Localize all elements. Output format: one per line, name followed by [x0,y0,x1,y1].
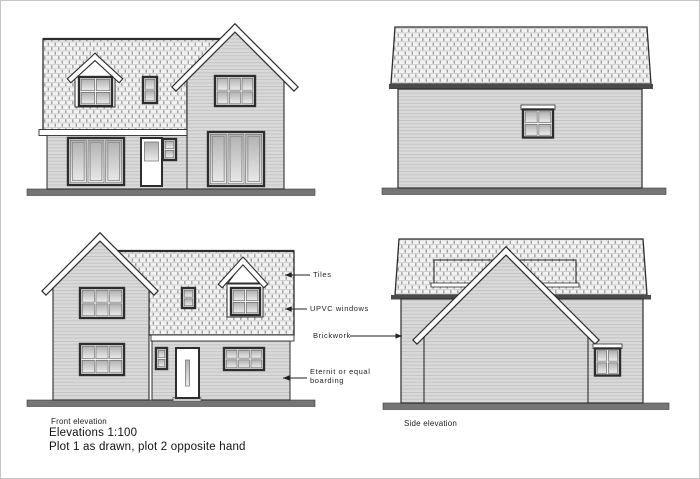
front-elevation-caption: Front elevation [51,417,107,426]
bl-dormer-window [231,288,260,315]
wall [152,341,290,400]
leader-lines [283,275,402,378]
bl-gable-upper-window [80,288,124,318]
tiles-label: Tiles [313,270,332,279]
bl-gable-lower-window [80,344,124,375]
wall [398,89,642,188]
scale-note: Elevations 1:100 [49,427,137,439]
upvc-windows-label: UPVC windows [310,304,369,313]
entrance-door [141,138,162,186]
eternit-line2: boarding [310,376,344,385]
bl-door-side-window [156,348,167,369]
brickwork-label: Brickwork [313,331,351,340]
eaves-fascia [389,84,653,89]
tl-patio-door [68,138,124,185]
tl-door-side-window [163,139,176,160]
eternit-line1: Eternit or equal [310,367,370,376]
bl-rooflight-window [182,288,195,308]
tl-gable-upper-window [215,76,255,106]
ground-line [382,188,666,195]
side-elevation-bottom-drawing [383,239,669,410]
tl-dormer-window [79,77,112,106]
bl-ground-window [224,348,264,370]
elevation-sheet: Tiles UPVC windows Brickwork Eternit or … [0,0,700,479]
elevations-drawing [1,1,700,479]
ground-line [27,189,315,196]
entrance-door [173,348,201,402]
ground-line [383,403,669,410]
tr-side-window [523,110,553,138]
tl-rooflight-window [143,77,157,103]
side-elevation-caption: Side elevation [404,419,457,428]
eaves-fascia [39,130,188,136]
eaves-fascia [151,335,294,341]
br-side-window [595,349,620,376]
roof [391,27,651,84]
ground-line [27,400,315,407]
eternit-boarding-label: Eternit or equal boarding [310,367,370,385]
tl-gable-patio-door [208,132,264,186]
front-elevation-bottom-drawing [27,237,315,407]
plot-note: Plot 1 as drawn, plot 2 opposite hand [49,441,246,453]
